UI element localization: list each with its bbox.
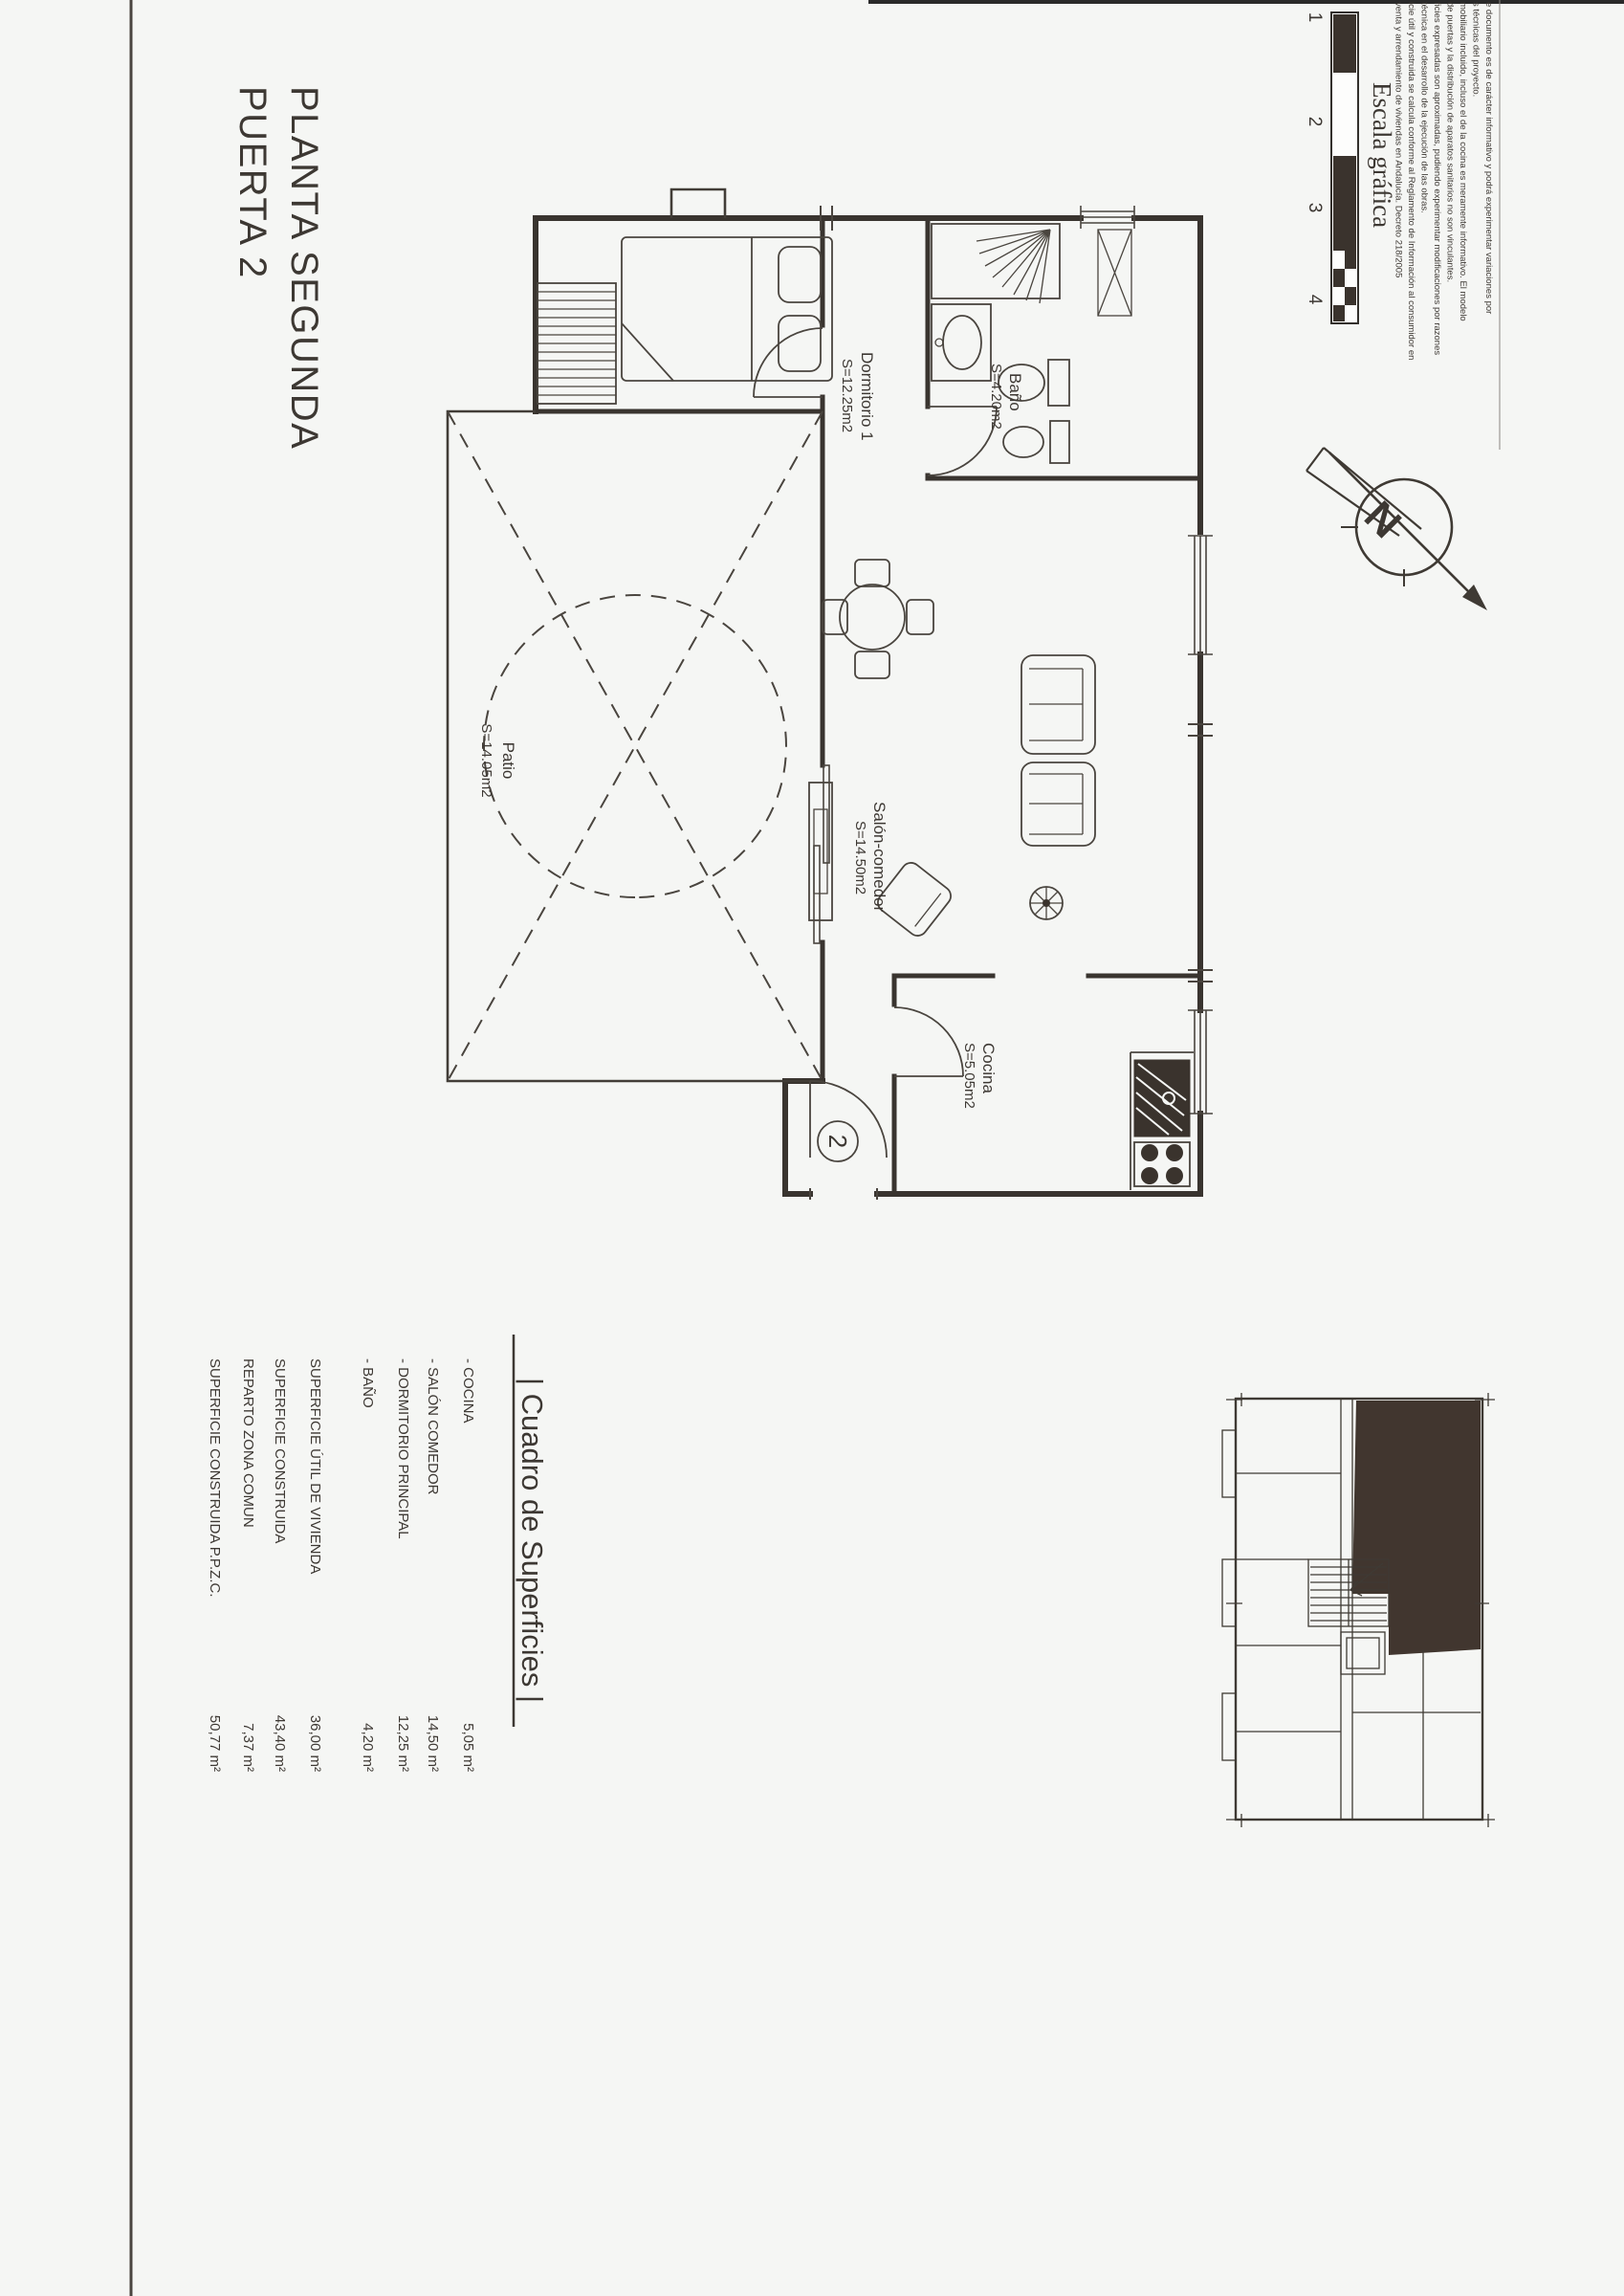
scale-segment	[1345, 287, 1356, 305]
kitchen-window	[1188, 1010, 1213, 1114]
wardrobe	[538, 283, 616, 404]
table-row-value: 4,20 m²	[360, 1723, 376, 1772]
title-block: PLANTA SEGUNDA PUERTA 2	[231, 86, 325, 450]
sink-unit	[1134, 1060, 1190, 1137]
room-labels: Dormitorio 1 S=12.25m2 Baño S=4.20m2 Sal…	[478, 352, 1024, 1109]
graphic-scale: Escala gráfica 1 2 3 4	[1305, 12, 1396, 323]
door-number: 2	[823, 1135, 852, 1148]
room-area-bano: S=4.20m2	[988, 364, 1004, 430]
keyplan-elevator	[1341, 1632, 1385, 1674]
surfaces-table: | Cuadro de Superficies | - COCINA 5,05 …	[207, 1335, 549, 1772]
room-area-patio: S=14.05m2	[478, 723, 494, 797]
bathroom-window	[1081, 206, 1134, 229]
page-title: PLANTA SEGUNDA	[283, 86, 325, 450]
side-table	[1030, 887, 1063, 919]
scale-segment	[1333, 156, 1356, 251]
table-row-label: - BAÑO	[360, 1358, 376, 1408]
table-row-value: 43,40 m²	[272, 1715, 288, 1772]
highlighted-unit	[1352, 1401, 1481, 1655]
bathroom-door	[928, 407, 997, 475]
key-plan	[1222, 1393, 1495, 1827]
north-arrow-icon: N	[1306, 448, 1487, 610]
kitchen-door	[894, 1007, 963, 1076]
room-label-salon: Salón-comedor	[870, 802, 889, 913]
table-row-value: 5,05 m²	[460, 1723, 476, 1772]
salon-window	[1188, 536, 1213, 654]
pillow	[779, 247, 821, 302]
service-shaft	[671, 189, 725, 218]
disclaimer-block: e documento es de carácter informativo y…	[1394, 2, 1495, 360]
scale-segment	[1333, 269, 1345, 287]
room-label-patio: Patio	[499, 742, 517, 780]
disclaimer-line: ficies expresadas son aproximadas, pudie…	[1432, 2, 1442, 355]
scale-number: 1	[1305, 12, 1325, 23]
table-row-label: - SALÓN COMEDOR	[425, 1358, 441, 1495]
room-area-cocina: S=5.05m2	[961, 1043, 977, 1109]
table-header: | Cuadro de Superficies |	[516, 1378, 549, 1703]
plan-drawing: e documento es de carácter informativo y…	[0, 0, 1624, 2296]
stove	[1134, 1142, 1190, 1186]
disclaimer-line: icie útil y construida se calcula confor…	[1406, 2, 1416, 360]
door-number-badge: 2	[818, 1121, 858, 1161]
table-row-value: 12,25 m²	[395, 1715, 411, 1772]
room-label-dormitorio: Dormitorio 1	[858, 352, 876, 441]
sofa	[1021, 655, 1095, 754]
table-row-label: SUPERFICIE CONSTRUIDA	[272, 1358, 288, 1543]
shower	[932, 224, 1060, 303]
disclaimer-line: s técnicas del proyecto.	[1471, 2, 1481, 97]
room-label-bano: Baño	[1006, 373, 1024, 411]
pillow	[779, 316, 821, 371]
bidet	[1003, 421, 1069, 463]
table-row-label: SUPERFICIE ÚTIL DE VIVIENDA	[307, 1358, 323, 1574]
table-row-value: 14,50 m²	[425, 1715, 441, 1772]
table-row-label: - COCINA	[460, 1358, 476, 1424]
disclaimer-line: técnica en el desarrollo de la ejecución…	[1419, 2, 1430, 213]
scanned-page: e documento es de carácter informativo y…	[0, 0, 1624, 2296]
floor-plan: 2	[448, 189, 1213, 1200]
dining-set	[823, 560, 933, 678]
patio-circle	[484, 595, 786, 897]
bedroom-furniture	[538, 237, 832, 404]
sofa	[1021, 762, 1095, 846]
disclaimer-line: mobiliario incluido, incluso el de la co…	[1458, 2, 1468, 321]
disclaimer-line: e documento es de carácter informativo y…	[1483, 2, 1494, 314]
table-row-value: 36,00 m²	[307, 1715, 323, 1772]
drawing-sheet: e documento es de carácter informativo y…	[0, 0, 1624, 2296]
scale-number: 2	[1305, 117, 1325, 127]
washbasin	[932, 304, 991, 381]
scale-segment	[1345, 251, 1356, 269]
scan-edge-artifact	[868, 0, 1624, 4]
kitchen-fixtures	[1130, 1052, 1194, 1190]
table-rows: - COCINA 5,05 m² - SALÓN COMEDOR 14,50 m…	[207, 1358, 476, 1772]
table-row-label: - DORMITORIO PRINCIPAL	[395, 1358, 411, 1539]
scale-segment	[1333, 14, 1356, 73]
doors: 2	[754, 328, 997, 1200]
table-row-label: SUPERFICIE CONSTRUIDA P.P.Z.C.	[207, 1358, 223, 1598]
scale-number: 4	[1305, 295, 1325, 305]
scale-label: Escala gráfica	[1368, 82, 1396, 228]
scale-segment	[1333, 305, 1345, 321]
table-row-label: REPARTO ZONA COMUN	[240, 1358, 256, 1528]
keyplan-balconies	[1222, 1430, 1236, 1760]
light-shaft	[1098, 230, 1131, 316]
disclaimer-line: de puertas y la distribución de aparatos…	[1445, 2, 1456, 282]
room-area-salon: S=14.50m2	[852, 821, 868, 894]
table-row-value: 50,77 m²	[207, 1715, 223, 1772]
scale-number: 3	[1305, 203, 1325, 213]
room-label-cocina: Cocina	[979, 1043, 998, 1093]
room-area-dormitorio: S=12.25m2	[839, 359, 855, 432]
table-row-value: 7,37 m²	[240, 1723, 256, 1772]
scale-numbers: 1 2 3 4	[1305, 12, 1325, 305]
bedroom-door	[754, 328, 823, 397]
bathroom-fixtures	[932, 224, 1131, 463]
page-subtitle: PUERTA 2	[231, 86, 274, 279]
